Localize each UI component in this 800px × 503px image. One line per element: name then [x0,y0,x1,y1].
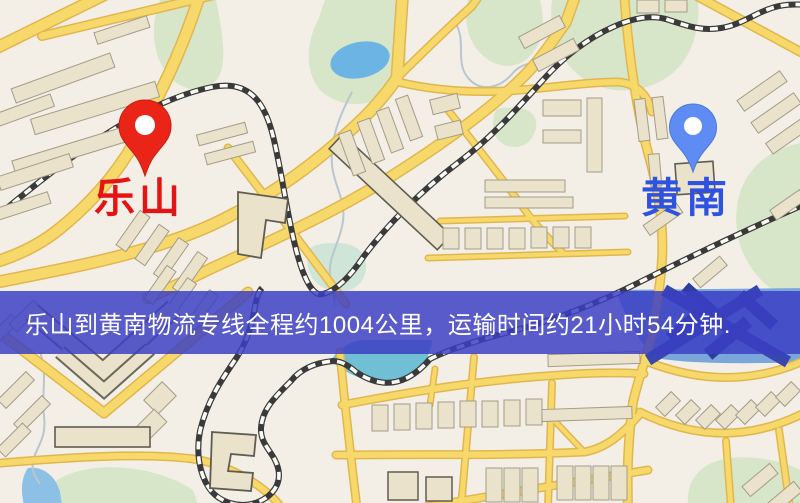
map-canvas[interactable]: 乐山到黄南物流专线全程约1004公里，运输时间约21小时54分钟. 乐山 黄南 [0,0,800,503]
map-graphic [0,0,800,503]
route-info-banner: 乐山到黄南物流专线全程约1004公里，运输时间约21小时54分钟. [0,291,800,354]
destination-pin-icon[interactable] [664,100,722,174]
origin-pin-icon[interactable] [113,96,177,180]
route-info-text: 乐山到黄南物流专线全程约1004公里，运输时间约21小时54分钟. [25,305,731,340]
origin-label: 乐山 [94,178,184,219]
destination-label: 黄南 [641,178,731,219]
